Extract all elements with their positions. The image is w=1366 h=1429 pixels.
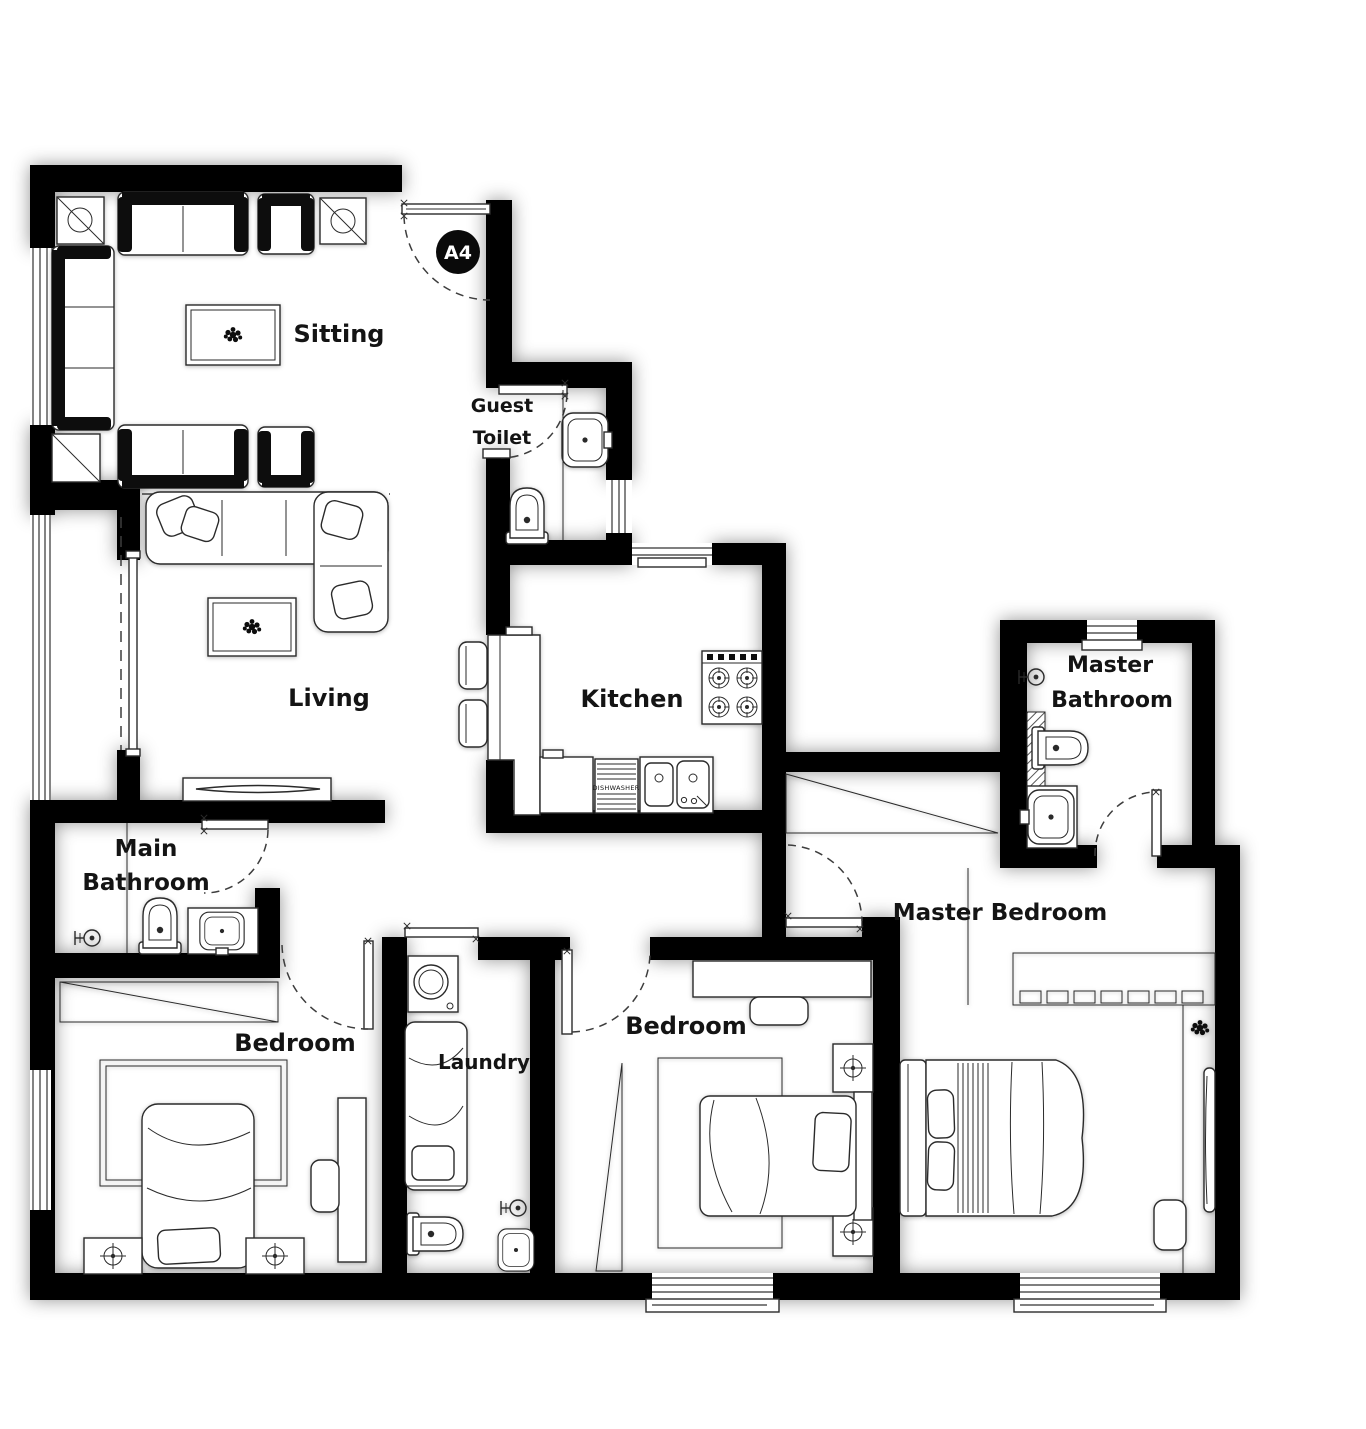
living-tv-console [183, 778, 331, 801]
label-laundry: Laundry [438, 1050, 530, 1074]
window-sitting-left [30, 248, 53, 425]
window-kitchen-top [632, 543, 712, 567]
wall-guest-toilet-top [486, 362, 632, 388]
bedroom-left-nightstand-1 [84, 1238, 142, 1274]
wall-entry-right [486, 200, 512, 368]
wall-main-bath-bottom [30, 953, 280, 978]
kitchen-cabinet [540, 750, 593, 813]
kitchen-dishwasher: DISHWASHER [592, 759, 639, 813]
sitting-side-table-bottom-left [52, 434, 100, 482]
label-bedroom-middle: Bedroom [625, 1012, 747, 1040]
sitting-armchair-top [258, 194, 314, 254]
label-bedroom-left: Bedroom [234, 1029, 356, 1057]
window-master-bottom [1014, 1273, 1166, 1312]
master-bench [1154, 1200, 1186, 1250]
master-bed [900, 1060, 1084, 1216]
sitting-armchair-bottom [258, 427, 314, 487]
sitting-sofa-top [118, 192, 248, 255]
window-guest-toilet-right [606, 480, 632, 533]
window-master-bath-top [1082, 620, 1142, 650]
badge-label: A4 [444, 242, 472, 264]
kitchen-chair-2 [459, 700, 487, 747]
wall-kitchen-right [762, 560, 786, 940]
wall-master-bath-left [1000, 620, 1027, 868]
wall-kitchen-corner [486, 760, 513, 813]
label-main-bathroom-1: Main [115, 836, 178, 862]
main-bath-vanity [188, 908, 258, 955]
wall-master-bath-right [1192, 620, 1215, 868]
label-master-bathroom-1: Master [1067, 653, 1153, 678]
sitting-sofa-bottom [118, 425, 248, 488]
entrance-badge: A4 [436, 230, 480, 274]
label-guest-toilet-2: Toilet [473, 427, 531, 449]
label-kitchen: Kitchen [581, 685, 684, 713]
sitting-sofa-left [52, 246, 114, 430]
label-master-bedroom: Master Bedroom [893, 900, 1108, 926]
label-master-bathroom-2: Bathroom [1051, 688, 1173, 713]
laundry-wc [407, 1213, 463, 1255]
wall-bedroom2-master [873, 937, 900, 1273]
wall-right-outer [1215, 855, 1240, 1300]
kitchen-chair-1 [459, 642, 487, 689]
laundry-rack [405, 1022, 467, 1190]
label-guest-toilet-1: Guest [471, 395, 533, 417]
window-living-left [30, 515, 51, 800]
bedroom-left-bed [142, 1104, 254, 1268]
label-main-bathroom-2: Bathroom [82, 870, 209, 896]
dishwasher-label: DISHWASHER [592, 784, 639, 792]
guest-toilet-wc [506, 488, 548, 544]
wall-hall-top [786, 752, 1002, 772]
wall-laundry-left [382, 937, 407, 1273]
wall-kitchen-left [486, 565, 510, 635]
master-tv [1204, 1068, 1215, 1212]
wall-bedroom2-top [650, 937, 875, 960]
sitting-side-table-top-right [320, 198, 366, 244]
window-bedroom-left [30, 1070, 51, 1210]
label-living: Living [288, 684, 370, 712]
sitting-side-table-top-left [57, 197, 104, 244]
master-bath-wc [1032, 727, 1088, 769]
window-bedroom-bottom [646, 1273, 779, 1312]
wall-sitting-left-top [30, 165, 55, 248]
laundry-sink [498, 1229, 534, 1271]
wall-laundry-right [530, 937, 555, 1273]
bedroom-middle-bed [700, 1092, 872, 1220]
guest-toilet-sink [562, 413, 612, 467]
laundry-washing-machine [408, 956, 458, 1012]
bedroom-left-nightstand-2 [246, 1238, 304, 1274]
floor-plan-canvas: DISHWASHER [0, 0, 1366, 1429]
sitting-coffee-table [186, 305, 280, 365]
kitchen-sink [640, 757, 713, 813]
bedroom-middle-nightstand-1 [833, 1044, 873, 1092]
living-coffee-table [208, 598, 296, 656]
wall-living-left-lower [117, 750, 140, 803]
main-bath-wc [139, 898, 181, 954]
wall-top [30, 165, 402, 192]
kitchen-stove [702, 651, 762, 724]
label-sitting: Sitting [294, 320, 385, 348]
floor-plan-drawing: DISHWASHER [0, 0, 1366, 1429]
master-bath-vanity [1020, 786, 1077, 848]
